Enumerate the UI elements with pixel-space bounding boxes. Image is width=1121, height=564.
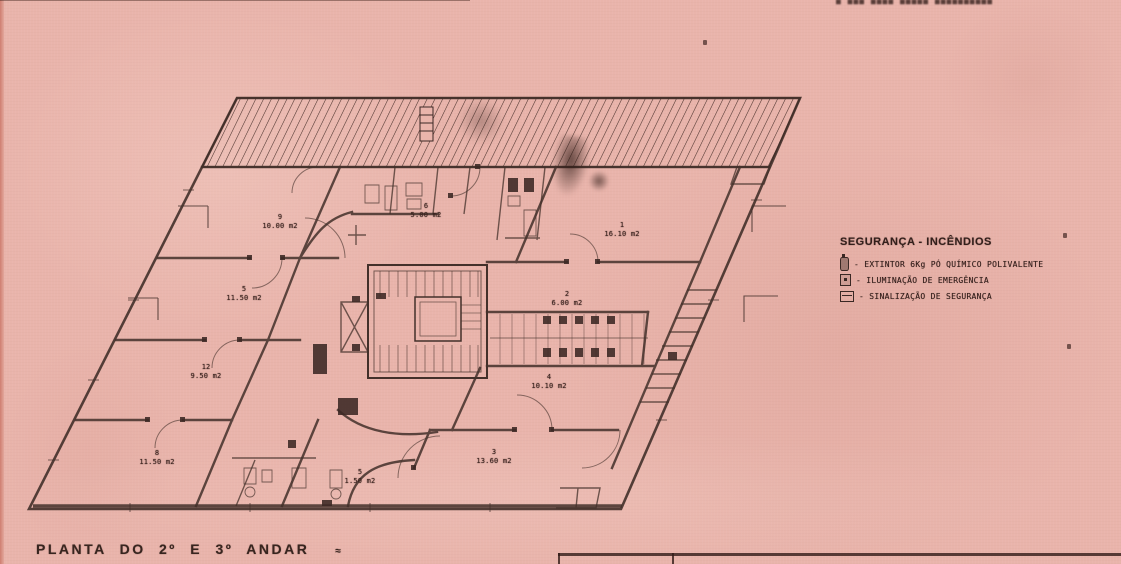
- emergency-light-icon: [840, 274, 851, 286]
- roof-ladder-symbol: [420, 107, 433, 141]
- legend-item-label: - SINALIZAÇÃO DE SEGURANÇA: [859, 292, 992, 301]
- legend-item: - EXTINTOR 6Kg PÓ QUÍMICO POLIVALENTE: [840, 258, 1118, 270]
- title-block-corner: [558, 553, 560, 564]
- title-block-border: [558, 553, 1121, 556]
- legend-item: - ILUMINAÇÃO DE EMERGÊNCIA: [840, 274, 1118, 286]
- drawing-title-text: PLANTA DO 2º E 3º ANDAR: [36, 541, 309, 557]
- wall-blobs: [145, 164, 677, 506]
- window-ticks: [48, 190, 762, 512]
- right-stair-steps: [640, 290, 717, 402]
- legend-item: - SINALIZAÇÃO DE SEGURANÇA: [840, 290, 1118, 302]
- legend-item-label: - EXTINTOR 6Kg PÓ QUÍMICO POLIVALENTE: [854, 260, 1043, 269]
- title-block-divider: [672, 553, 674, 564]
- cross-mark: [348, 225, 366, 245]
- blueprint-sheet: ■ ■■■ ■■■■ ■■■■■ ■■■■■■■■■■: [0, 0, 1121, 564]
- legend-items: - EXTINTOR 6Kg PÓ QUÍMICO POLIVALENTE - …: [840, 258, 1118, 302]
- legend-title: SEGURANÇA - INCÊNDIOS: [840, 236, 1118, 248]
- hatched-roof-area: [202, 98, 800, 167]
- kitchen-corridor: [490, 314, 648, 364]
- drawing-title: PLANTA DO 2º E 3º ANDAR≈: [36, 541, 341, 557]
- safety-sign-icon: [840, 291, 854, 302]
- interior-walls: [76, 167, 769, 506]
- stair-core: [368, 265, 487, 378]
- scale-mark: ≈: [335, 546, 341, 557]
- fire-safety-legend: SEGURANÇA - INCÊNDIOS - EXTINTOR 6Kg PÓ …: [840, 236, 1118, 306]
- legend-item-label: - ILUMINAÇÃO DE EMERGÊNCIA: [856, 276, 989, 285]
- extinguisher-icon: [840, 257, 849, 271]
